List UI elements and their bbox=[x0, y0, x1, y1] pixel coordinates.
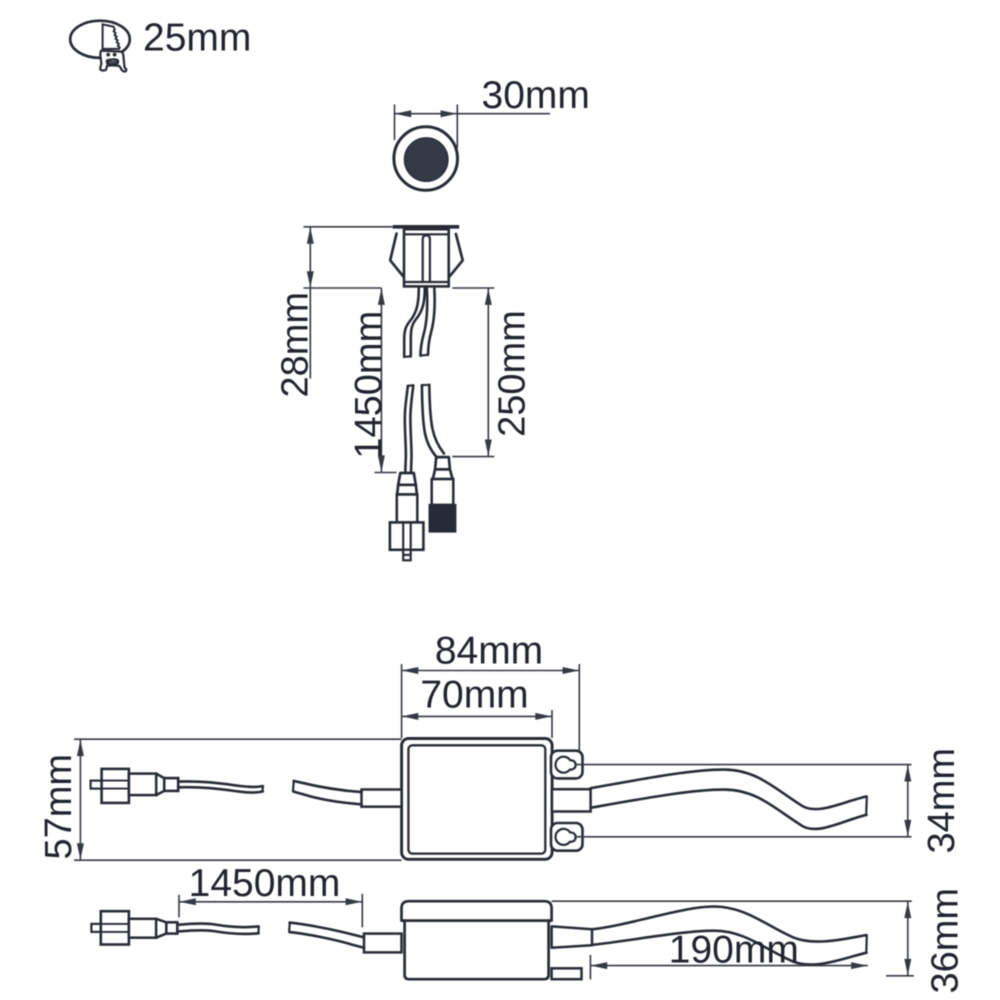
svg-text:70mm: 70mm bbox=[420, 674, 528, 717]
svg-text:57mm: 57mm bbox=[38, 754, 80, 860]
svg-text:34mm: 34mm bbox=[921, 748, 963, 854]
svg-text:250mm: 250mm bbox=[492, 310, 534, 437]
svg-text:190mm: 190mm bbox=[669, 929, 799, 972]
svg-text:25mm: 25mm bbox=[143, 17, 251, 60]
svg-text:84mm: 84mm bbox=[435, 630, 543, 673]
svg-text:28mm: 28mm bbox=[275, 292, 317, 398]
svg-text:36mm: 36mm bbox=[925, 888, 967, 994]
svg-text:30mm: 30mm bbox=[482, 74, 590, 117]
svg-text:1450mm: 1450mm bbox=[189, 862, 341, 905]
svg-text:1450mm: 1450mm bbox=[348, 311, 390, 459]
